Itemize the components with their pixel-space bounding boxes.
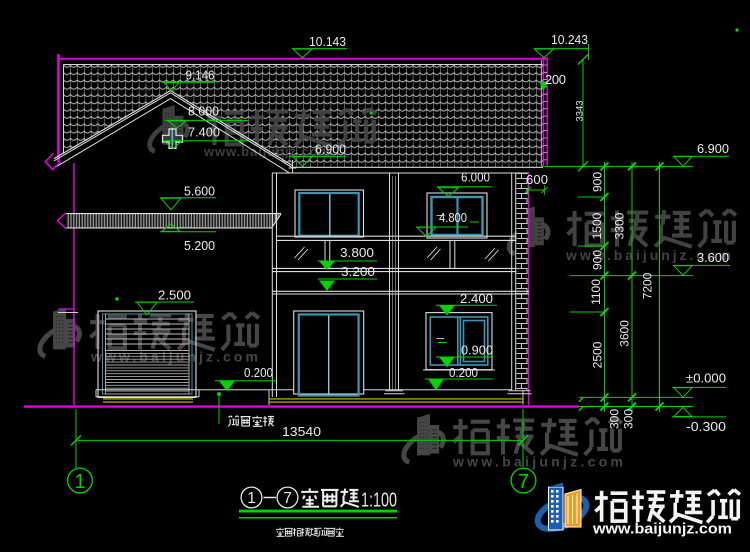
svg-text:2.400: 2.400: [460, 291, 493, 306]
svg-text:13540: 13540: [282, 424, 321, 439]
svg-text:1:100: 1:100: [361, 490, 397, 512]
svg-text:0.200: 0.200: [449, 365, 478, 380]
svg-text:300: 300: [622, 409, 636, 429]
svg-text:1500: 1500: [590, 212, 604, 239]
svg-text:5.600: 5.600: [184, 184, 215, 199]
svg-text:2.500: 2.500: [158, 288, 191, 303]
svg-text:6.000: 6.000: [461, 170, 490, 185]
svg-text:3.800: 3.800: [340, 245, 374, 260]
svg-text:600: 600: [526, 172, 548, 187]
svg-text:3600: 3600: [618, 320, 632, 347]
svg-text:2500: 2500: [591, 341, 605, 368]
svg-text:8.000: 8.000: [188, 104, 219, 119]
svg-text:900: 900: [591, 172, 605, 192]
svg-text:10.143: 10.143: [309, 34, 346, 49]
svg-text:9.146: 9.146: [186, 68, 215, 83]
svg-text:7: 7: [518, 471, 529, 493]
svg-text:www.baijunjz.com: www.baijunjz.com: [592, 522, 732, 538]
svg-text:4.800: 4.800: [439, 210, 467, 225]
svg-text:10.243: 10.243: [551, 32, 588, 47]
svg-text:200: 200: [545, 72, 566, 87]
svg-text:3300: 3300: [613, 212, 627, 239]
svg-text:5.200: 5.200: [184, 238, 215, 253]
svg-text:±0.000: ±0.000: [686, 371, 726, 386]
svg-text:3.600: 3.600: [697, 250, 729, 265]
svg-text:1: 1: [247, 490, 256, 507]
svg-text:-0.300: -0.300: [686, 419, 726, 434]
svg-text:6.900: 6.900: [315, 142, 346, 157]
svg-text:0.900: 0.900: [461, 343, 493, 358]
svg-text:7200: 7200: [641, 272, 655, 299]
svg-text:7: 7: [283, 490, 292, 507]
svg-text:6.900: 6.900: [697, 141, 729, 156]
svg-text:1: 1: [74, 471, 85, 493]
svg-text:3.200: 3.200: [341, 264, 375, 279]
svg-text:1100: 1100: [589, 279, 603, 305]
svg-text:7.400: 7.400: [188, 125, 220, 140]
svg-text:3343: 3343: [575, 100, 586, 121]
svg-text:0.200: 0.200: [244, 365, 273, 380]
svg-text:300: 300: [608, 409, 622, 429]
svg-text:900: 900: [591, 250, 605, 270]
